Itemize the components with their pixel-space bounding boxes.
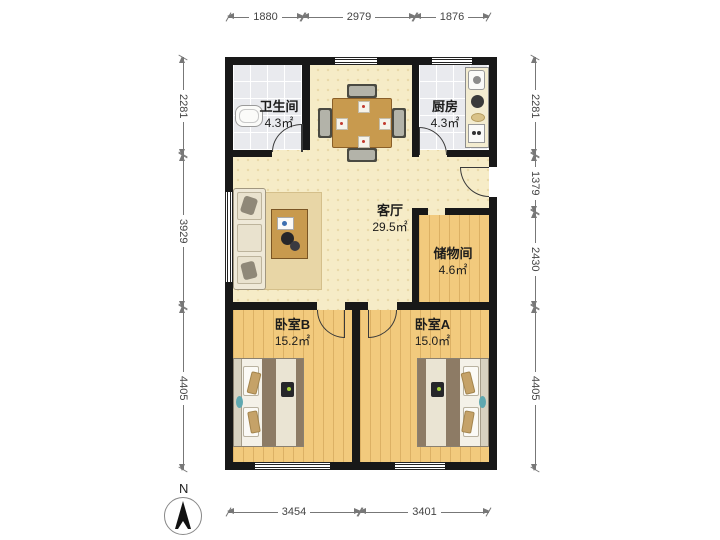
wall: [447, 150, 489, 157]
dimension-left-3: 4405: [176, 307, 190, 470]
dining-chair-right: [392, 108, 406, 138]
wall: [397, 302, 489, 310]
door-leaf-bedroom-b: [344, 310, 346, 338]
sofa-cushion: [237, 224, 262, 252]
dimension-line: [535, 212, 536, 243]
dimension-value: 1880: [249, 11, 281, 23]
place-mat: [379, 118, 391, 130]
door-leaf-bedroom-a: [368, 310, 370, 338]
dining-table: [332, 98, 392, 148]
room-name: 卫生间: [250, 99, 308, 116]
dimension-top-3: 1876: [415, 10, 489, 24]
room-area: 15.0㎡: [400, 334, 465, 350]
bed-runner: [426, 359, 446, 446]
floor-plan-page: 卫生间 4.3㎡ 厨房 4.3㎡ 客厅 29.5㎡ 储物间 4.6㎡ 卧室B 1…: [0, 0, 720, 540]
room-label-storage: 储物间 4.6㎡: [424, 246, 482, 278]
wall: [233, 150, 272, 157]
room-name: 卧室B: [260, 317, 325, 334]
wall: [233, 302, 317, 310]
dimension-right-3: 2430: [528, 212, 542, 307]
room-name: 卧室A: [400, 317, 465, 334]
dimension-top-1: 1880: [228, 10, 303, 24]
dining-chair-left: [318, 108, 332, 138]
room-area: 4.3㎡: [250, 116, 308, 132]
place-mat: [358, 101, 370, 113]
room-area: 29.5㎡: [350, 220, 430, 236]
dimension-line: [360, 512, 408, 513]
decor-pillow: [236, 396, 243, 408]
basin: [471, 113, 485, 122]
dimension-line: [535, 405, 536, 470]
dimension-line: [303, 17, 343, 18]
room-label-living: 客厅 29.5㎡: [350, 203, 430, 235]
dimension-line: [375, 17, 415, 18]
dimension-right-1: 2281: [528, 57, 542, 155]
dimension-top-2: 2979: [303, 10, 415, 24]
window: [225, 192, 233, 282]
dimension-bottom-2: 3401: [360, 505, 489, 519]
bed-bedroom-a: [417, 358, 489, 447]
dimension-line: [183, 307, 184, 372]
dimension-value: 1876: [436, 11, 468, 23]
dimension-line: [183, 122, 184, 155]
dimension-line: [183, 57, 184, 90]
room-name: 储物间: [424, 246, 482, 263]
dimension-value: 3454: [278, 506, 310, 518]
dimension-line: [535, 122, 536, 155]
sofa: [233, 188, 266, 290]
dimension-value: 4405: [529, 372, 541, 404]
compass-needle-notch: [178, 521, 188, 529]
wall: [489, 57, 497, 167]
room-area: 4.3㎡: [420, 116, 470, 132]
stove: [468, 124, 485, 143]
magazine: [277, 217, 294, 230]
wall: [489, 197, 497, 470]
dimension-line: [282, 17, 303, 18]
dimension-left-1: 2281: [176, 57, 190, 155]
dimension-line: [228, 512, 278, 513]
dimension-right-4: 4405: [528, 307, 542, 470]
dimension-left-2: 3929: [176, 155, 190, 307]
dimension-line: [468, 17, 489, 18]
stove-burner: [471, 95, 484, 108]
dimension-value: 1379: [529, 167, 541, 199]
room-label-bedroom-b: 卧室B 15.2㎡: [260, 317, 325, 349]
dimension-value: 2281: [529, 90, 541, 122]
dimension-value: 2979: [343, 11, 375, 23]
bed-runner: [276, 359, 296, 446]
dimension-line: [535, 155, 536, 167]
dimension-right-2: 1379: [528, 155, 542, 212]
dimension-line: [183, 247, 184, 307]
door-leaf-entry: [460, 167, 489, 169]
dimension-value: 3401: [408, 506, 440, 518]
window: [432, 57, 472, 65]
bed-accessory: [281, 382, 294, 397]
dimension-line: [535, 276, 536, 307]
dining-chair-bottom: [347, 148, 377, 162]
kitchen-sink: [468, 70, 485, 90]
wall: [445, 208, 489, 215]
dimension-line: [310, 512, 360, 513]
dimension-line: [535, 57, 536, 90]
coffee-table: [271, 209, 308, 259]
dimension-value: 2281: [177, 90, 189, 122]
compass-north-label: N: [179, 481, 188, 496]
dimension-line: [535, 307, 536, 372]
decor-pillow: [479, 396, 486, 408]
room-label-bathroom: 卫生间 4.3㎡: [250, 99, 308, 131]
place-mat: [336, 118, 348, 130]
window: [395, 462, 445, 470]
window: [255, 462, 330, 470]
dimension-line: [228, 17, 249, 18]
dimension-line: [415, 17, 436, 18]
room-name: 厨房: [420, 99, 470, 116]
bed-bedroom-b: [233, 358, 304, 447]
window: [335, 57, 377, 65]
room-label-kitchen: 厨房 4.3㎡: [420, 99, 470, 131]
dimension-value: 4405: [177, 372, 189, 404]
room-label-bedroom-a: 卧室A 15.0㎡: [400, 317, 465, 349]
room-area: 4.6㎡: [424, 263, 482, 279]
dining-chair-top: [347, 84, 377, 98]
decor-object: [290, 241, 300, 251]
dimension-bottom-1: 3454: [228, 505, 360, 519]
dimension-value: 2430: [529, 243, 541, 275]
dimension-line: [183, 155, 184, 215]
wall: [345, 302, 368, 310]
blanket: [418, 359, 460, 446]
dimension-line: [183, 405, 184, 470]
dimension-value: 3929: [177, 215, 189, 247]
bed-accessory: [431, 382, 444, 397]
wall: [352, 310, 360, 462]
place-mat: [358, 136, 370, 148]
room-area: 15.2㎡: [260, 334, 325, 350]
dimension-line: [441, 512, 489, 513]
blanket: [262, 359, 303, 446]
room-name: 客厅: [350, 203, 430, 220]
